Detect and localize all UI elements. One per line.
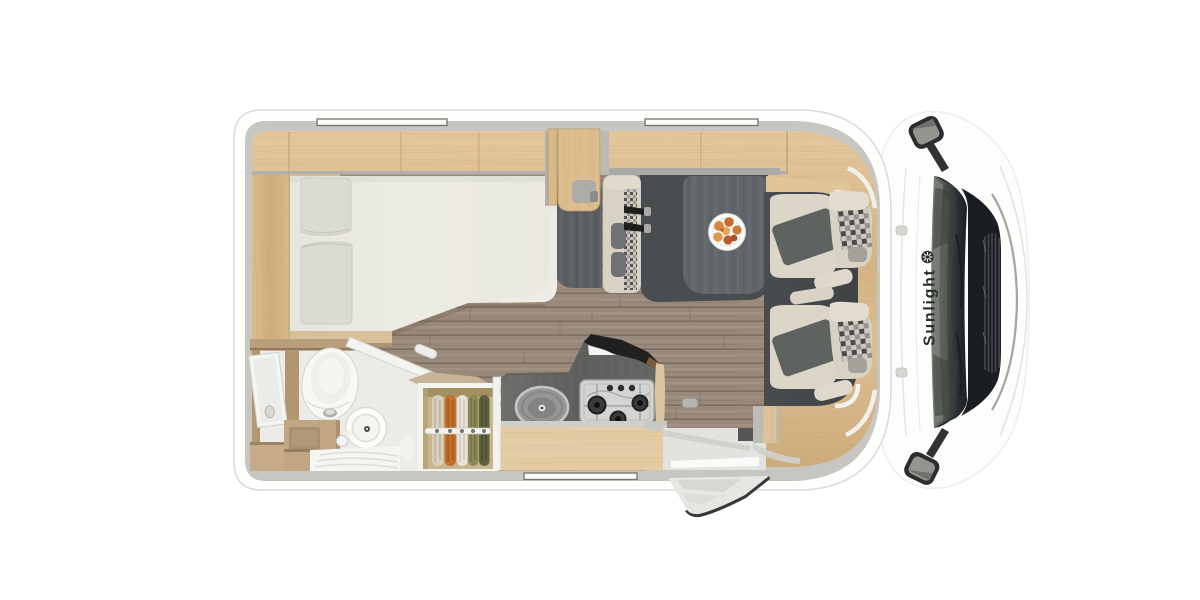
svg-text:Sunlight: Sunlight: [922, 268, 939, 346]
